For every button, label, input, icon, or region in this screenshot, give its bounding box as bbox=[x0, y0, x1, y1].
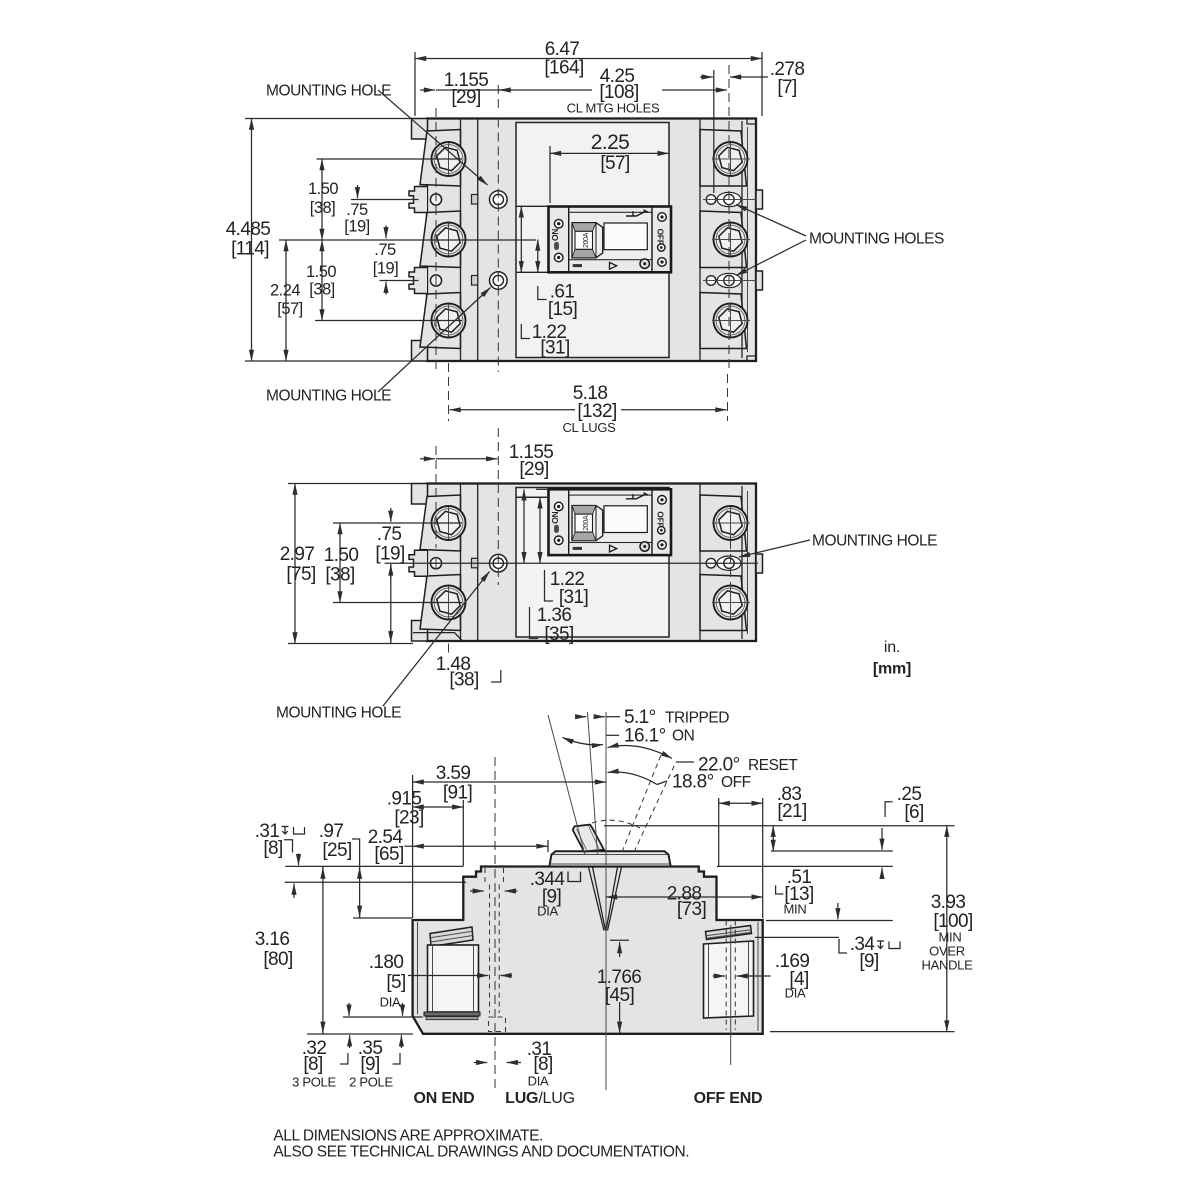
svg-text:.97: .97 bbox=[319, 821, 344, 842]
svg-text:3 POLE: 3 POLE bbox=[292, 1075, 336, 1090]
svg-text:OVER: OVER bbox=[929, 944, 965, 959]
svg-text:[75]: [75] bbox=[286, 564, 315, 585]
svg-text:[31]: [31] bbox=[540, 337, 569, 358]
svg-text:ALL DIMENSIONS ARE APPROXIMATE: ALL DIMENSIONS ARE APPROXIMATE. bbox=[273, 1128, 542, 1145]
svg-text:[21]: [21] bbox=[777, 801, 806, 822]
svg-text:LUG/LUG: LUG/LUG bbox=[505, 1090, 575, 1107]
svg-text:[23]: [23] bbox=[394, 807, 423, 828]
svg-text:MOUNTING HOLE: MOUNTING HOLE bbox=[266, 388, 391, 405]
svg-text:.75: .75 bbox=[346, 201, 368, 219]
svg-text:[164]: [164] bbox=[544, 57, 583, 78]
svg-text:MIN: MIN bbox=[939, 930, 962, 945]
svg-text:[25]: [25] bbox=[322, 840, 351, 861]
svg-text:1.50: 1.50 bbox=[324, 545, 359, 566]
svg-text:16.1°: 16.1° bbox=[624, 725, 666, 746]
svg-text:2.24: 2.24 bbox=[270, 281, 300, 299]
svg-text:[9]: [9] bbox=[360, 1054, 379, 1075]
svg-text:.180: .180 bbox=[369, 952, 404, 973]
svg-text:[38]: [38] bbox=[449, 669, 478, 690]
svg-text:[29]: [29] bbox=[451, 87, 480, 108]
svg-text:DIA: DIA bbox=[537, 904, 558, 919]
svg-text:[80]: [80] bbox=[263, 949, 292, 970]
svg-text:MOUNTING HOLE: MOUNTING HOLE bbox=[812, 533, 937, 550]
svg-text:3.16: 3.16 bbox=[255, 929, 290, 950]
svg-text:2 POLE: 2 POLE bbox=[349, 1075, 393, 1090]
svg-text:ON: ON bbox=[672, 727, 694, 744]
svg-text:CL MTG HOLES: CL MTG HOLES bbox=[567, 101, 660, 116]
svg-text:[57]: [57] bbox=[277, 300, 303, 318]
svg-text:TRIPPED: TRIPPED bbox=[665, 709, 729, 726]
svg-text:RESET: RESET bbox=[748, 757, 798, 774]
svg-text:[9]: [9] bbox=[859, 951, 878, 972]
svg-text:[19]: [19] bbox=[375, 543, 404, 564]
svg-text:[7]: [7] bbox=[777, 77, 796, 98]
svg-text:[65]: [65] bbox=[374, 844, 403, 865]
svg-text:ALSO SEE TECHNICAL DRAWINGS AN: ALSO SEE TECHNICAL DRAWINGS AND DOCUMENT… bbox=[273, 1143, 689, 1160]
svg-text:[108]: [108] bbox=[599, 82, 638, 103]
svg-text:[38]: [38] bbox=[310, 199, 336, 217]
svg-text:1.36: 1.36 bbox=[537, 605, 572, 626]
svg-text:4.485: 4.485 bbox=[226, 219, 271, 240]
svg-text:[35]: [35] bbox=[544, 624, 573, 645]
svg-text:MIN: MIN bbox=[784, 902, 807, 917]
svg-text:[mm]: [mm] bbox=[873, 661, 911, 678]
svg-text:1.50: 1.50 bbox=[306, 263, 336, 281]
svg-text:MOUNTING HOLE: MOUNTING HOLE bbox=[266, 83, 391, 100]
svg-text:[5]: [5] bbox=[386, 972, 405, 993]
svg-text:OFF END: OFF END bbox=[694, 1090, 763, 1107]
svg-text:[19]: [19] bbox=[373, 259, 399, 277]
svg-text:[8]: [8] bbox=[303, 1054, 322, 1075]
svg-text:.915: .915 bbox=[387, 788, 422, 809]
svg-text:ON END: ON END bbox=[413, 1090, 474, 1107]
svg-text:3.59: 3.59 bbox=[436, 763, 471, 784]
svg-text:[6]: [6] bbox=[904, 802, 923, 823]
svg-text:3.93: 3.93 bbox=[931, 892, 966, 913]
svg-text:[38]: [38] bbox=[325, 564, 354, 585]
svg-text:[73]: [73] bbox=[677, 899, 706, 920]
svg-text:.75: .75 bbox=[374, 241, 396, 259]
svg-text:[45]: [45] bbox=[605, 985, 634, 1006]
svg-text:[29]: [29] bbox=[519, 459, 548, 480]
svg-text:DIA: DIA bbox=[528, 1074, 549, 1089]
svg-text:[15]: [15] bbox=[548, 299, 577, 320]
svg-text:18.8°: 18.8° bbox=[672, 771, 714, 792]
svg-text:OFF: OFF bbox=[721, 774, 751, 791]
svg-text:[8]: [8] bbox=[263, 838, 282, 859]
svg-text:[38]: [38] bbox=[309, 280, 335, 298]
svg-text:2.25: 2.25 bbox=[591, 131, 629, 154]
svg-text:DIA: DIA bbox=[380, 995, 401, 1010]
svg-text:[19]: [19] bbox=[344, 217, 370, 235]
svg-text:2.97: 2.97 bbox=[280, 544, 315, 565]
svg-text:DIA: DIA bbox=[785, 986, 806, 1001]
svg-text:[57]: [57] bbox=[600, 153, 629, 174]
svg-text:in.: in. bbox=[884, 639, 900, 656]
svg-text:[132]: [132] bbox=[577, 401, 616, 422]
svg-text:CL LUGS: CL LUGS bbox=[562, 420, 616, 435]
svg-text:MOUNTING HOLES: MOUNTING HOLES bbox=[809, 231, 944, 248]
svg-text:1.50: 1.50 bbox=[308, 180, 338, 198]
svg-text:.75: .75 bbox=[377, 524, 402, 545]
svg-text:[8]: [8] bbox=[533, 1054, 552, 1075]
svg-text:[91]: [91] bbox=[443, 782, 472, 803]
svg-text:[114]: [114] bbox=[231, 238, 269, 259]
svg-text:[100]: [100] bbox=[933, 911, 972, 932]
svg-text:HANDLE: HANDLE bbox=[922, 958, 974, 973]
svg-text:MOUNTING HOLE: MOUNTING HOLE bbox=[276, 705, 401, 722]
